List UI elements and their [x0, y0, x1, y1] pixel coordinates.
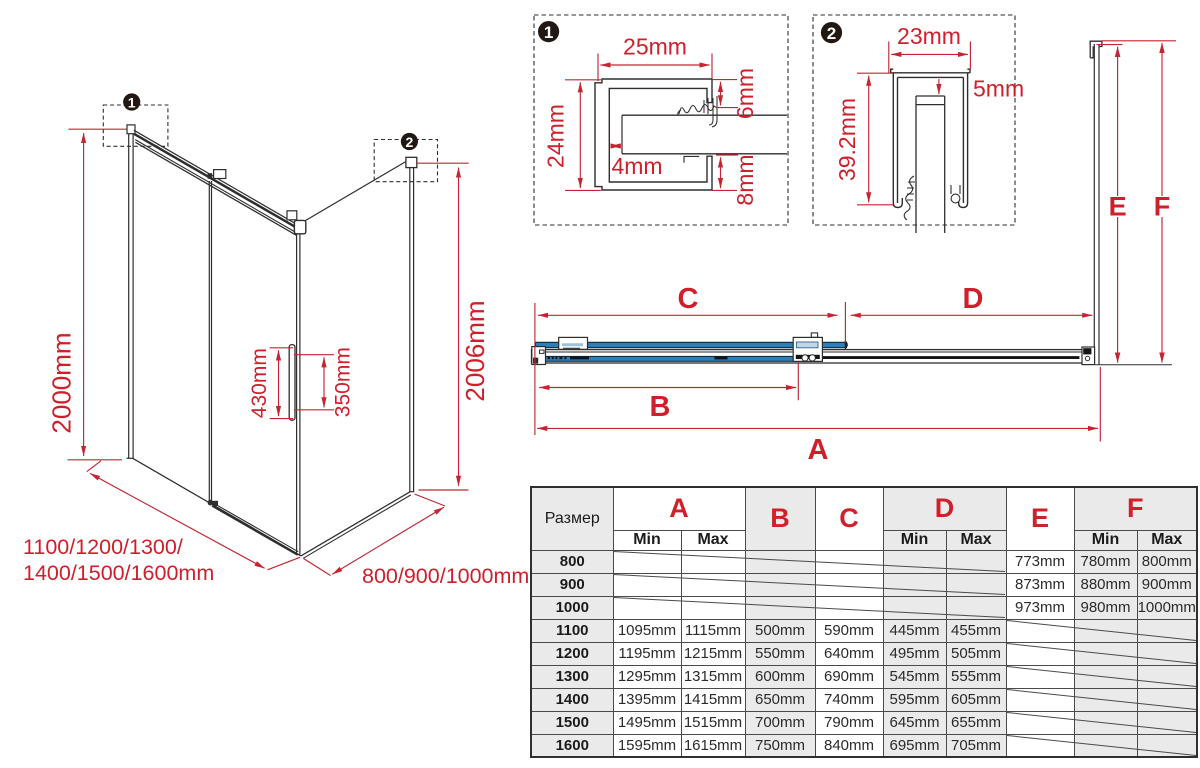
- svg-text:2000mm: 2000mm: [47, 332, 77, 433]
- svg-text:C: C: [678, 283, 699, 315]
- svg-text:F: F: [1154, 192, 1171, 222]
- svg-text:A: A: [808, 434, 829, 466]
- svg-text:24mm: 24mm: [543, 104, 569, 168]
- svg-text:23mm: 23mm: [897, 23, 961, 49]
- svg-text:6mm: 6mm: [732, 68, 758, 119]
- svg-text:D: D: [963, 283, 984, 315]
- svg-text:800/900/1000mm: 800/900/1000mm: [362, 564, 529, 588]
- svg-text:2: 2: [827, 24, 836, 43]
- svg-text:1100/1200/1300/: 1100/1200/1300/: [23, 535, 183, 559]
- svg-text:4mm: 4mm: [611, 153, 662, 179]
- svg-text:E: E: [1109, 192, 1127, 222]
- svg-text:25mm: 25mm: [623, 34, 687, 60]
- svg-text:8mm: 8mm: [732, 154, 758, 205]
- svg-text:1400/1500/1600mm: 1400/1500/1600mm: [23, 561, 214, 585]
- svg-text:350mm: 350mm: [332, 347, 355, 417]
- svg-text:B: B: [650, 391, 671, 423]
- svg-text:1: 1: [128, 94, 136, 110]
- svg-text:2006mm: 2006mm: [460, 300, 490, 401]
- svg-text:5mm: 5mm: [973, 76, 1024, 102]
- svg-text:2: 2: [406, 134, 414, 150]
- svg-text:39.2mm: 39.2mm: [834, 98, 860, 181]
- svg-text:1: 1: [544, 23, 553, 42]
- svg-text:430mm: 430mm: [248, 348, 271, 418]
